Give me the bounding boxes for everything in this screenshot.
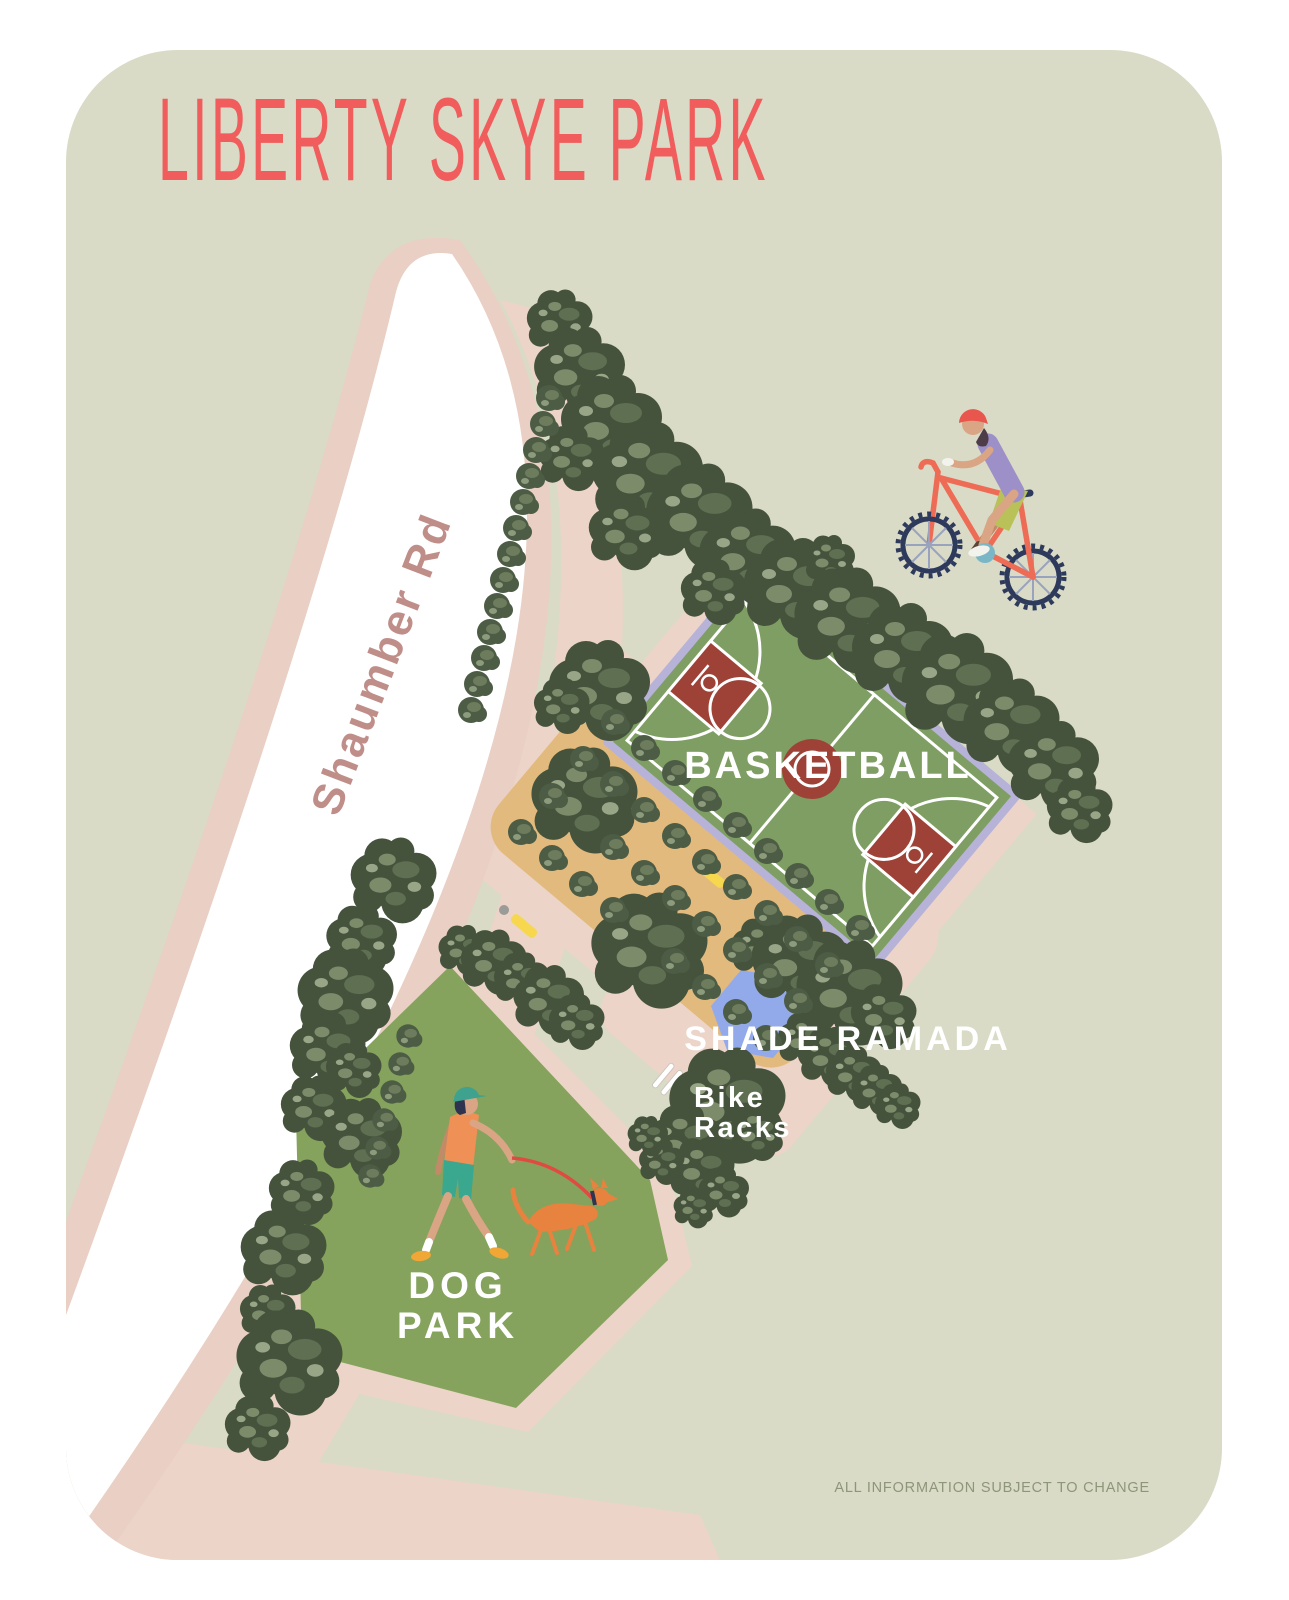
dog-park-label-line1: DOG <box>408 1265 507 1306</box>
bike-racks-label-line1: Bike <box>694 1082 765 1114</box>
disclaimer-text: ALL INFORMATION SUBJECT TO CHANGE <box>834 1480 1150 1496</box>
dog-park-label-line2: PARK <box>397 1305 519 1346</box>
bike-racks-label-line2: Racks <box>694 1112 792 1144</box>
trash-can-icon <box>499 905 509 915</box>
park-map-illustration: LIBERTY SKYE PARK Shaumber Rd BASKETBALL… <box>0 0 1289 1600</box>
shade-ramada-label: SHADE RAMADA <box>684 1020 1012 1058</box>
park-map-page: LIBERTY SKYE PARK Shaumber Rd BASKETBALL… <box>0 0 1289 1600</box>
basketball-label: BASKETBALL <box>684 745 972 787</box>
park-title: LIBERTY SKYE PARK <box>158 74 769 206</box>
